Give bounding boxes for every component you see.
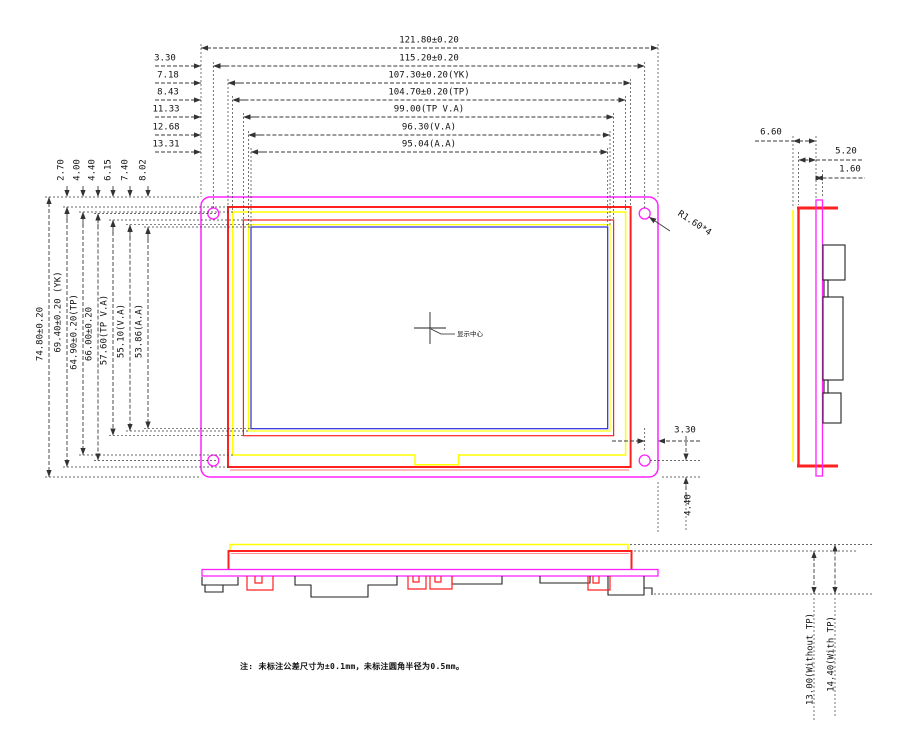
mount-hole-top-left [208,208,219,219]
display-center-label: 显示中心 [457,331,483,338]
mount-hole-bottom-left [208,455,219,466]
offset-label-12-68: 12.68 [152,124,179,133]
offset-label-3-30: 3.30 [154,55,176,64]
tp-outline [233,212,626,465]
offset-label-13-31: 13.31 [152,141,179,150]
hole-offset-h-label: 3.30 [674,427,696,436]
bottom-view [202,545,658,598]
side-component-2 [823,297,843,380]
yk-frame [228,207,631,467]
hole-offset-v-label: 4.40 [685,494,694,516]
dim-label-115-20: 115.20±0.20 [399,55,459,64]
side-dim-5-20: 5.20 [835,148,857,157]
outer-frame [201,197,658,477]
dim-label-74-80: 74.80±0.20 [37,307,46,361]
display-center-cross [414,312,446,344]
side-component-1 [823,245,845,280]
dim-label-64-90: 64.90±0.20(TP) [71,294,80,370]
dim-label-66-00: 66.00±0.20 [86,307,95,361]
offset-label-8-43: 8.43 [157,89,179,98]
bottom-dim-with-tp: 14.40(With TP) [828,616,837,692]
side-component-3 [823,393,841,423]
offset-label-8-02: 8.02 [140,159,149,181]
offset-label-7-18: 7.18 [157,72,179,81]
dim-label-99-00: 99.00(TP V.A) [394,106,464,115]
dim-label-107-30: 107.30±0.20(YK) [388,72,469,81]
dim-label-69-40: 69.40±0.20 (YK) [55,271,64,352]
side-component-neck-2 [824,380,828,393]
mount-hole-top-right [639,208,650,219]
side-component-neck-1 [824,280,828,297]
radius-leader [649,217,670,231]
side-dim-6-60: 6.60 [760,129,782,138]
offset-label-2-70: 2.70 [58,159,67,181]
bottom-pcb [202,570,658,577]
dim-label-95-04: 95.04(A.A) [402,141,456,150]
dim-label-96-30: 96.30(V.A) [402,124,456,133]
side-pcb [816,200,823,476]
front-view [201,197,658,477]
bottom-right-block [608,576,652,595]
drawing-note: 注: 未标注公差尺寸为±0.1mm，未标注圆角半径为0.5mm。 [240,663,464,671]
display-center-leader [431,329,455,334]
drawing-canvas: 121.80±0.20 115.20±0.20 107.30±0.20(YK) … [0,0,897,756]
offset-label-4-40: 4.40 [89,159,98,181]
offset-label-11-33: 11.33 [152,106,179,115]
bottom-main-connector [295,576,397,597]
dim-label-53-86: 53.86(A.A) [136,304,145,358]
offset-label-4-00: 4.00 [74,159,83,181]
side-view [793,200,845,476]
offset-label-6-15: 6.15 [105,159,114,181]
bottom-thin-component-1 [452,576,502,584]
bottom-left-step [202,577,238,592]
corner-extension-lines [645,428,700,532]
bottom-dim-without-tp: 13.00(Without TP) [807,613,816,705]
dim-label-57-60: 57.60(TP V.A) [101,295,110,365]
side-extension-lines [793,136,823,208]
offset-label-7-40: 7.40 [122,159,131,181]
bottom-thin-component-2 [540,576,590,583]
mount-hole-bottom-right [639,455,650,466]
dim-label-104-70: 104.70±0.20(TP) [388,89,469,98]
side-dim-1-60: 1.60 [839,166,861,175]
dim-label-121-80: 121.80±0.20 [399,37,459,46]
bottom-components [202,576,652,597]
dim-label-55-10: 55.10(V.A) [118,304,127,358]
